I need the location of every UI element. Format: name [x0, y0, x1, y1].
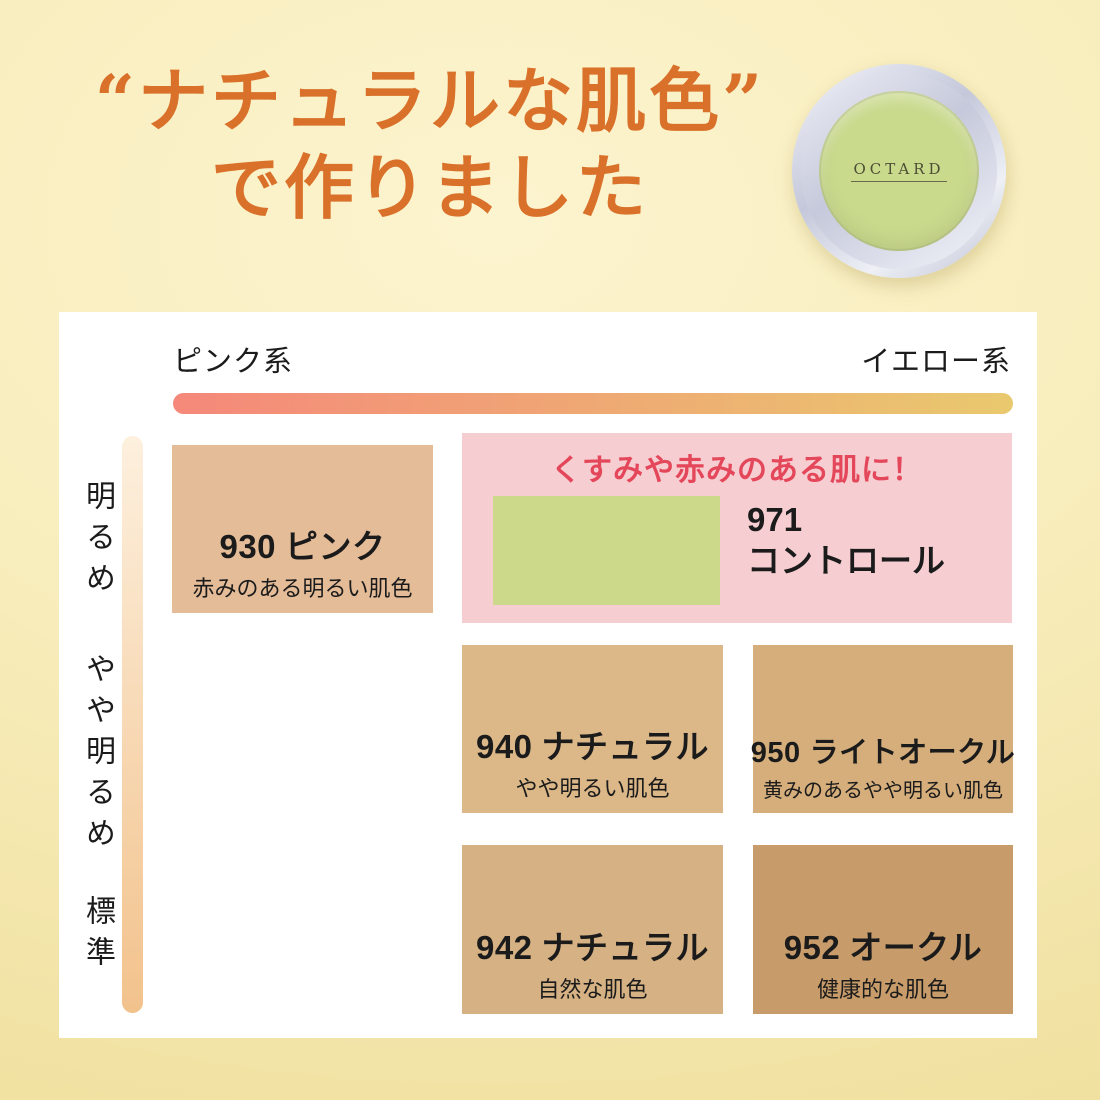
shade-swatch-940: 940ナチュラル やや明るい肌色 [462, 645, 723, 813]
callout-panel: くすみや赤みのある肌に！ 971 コントロール [462, 433, 1012, 623]
shade-name: ピンク [285, 528, 386, 565]
shade-code: 952 [784, 929, 841, 966]
shade-swatch-971 [493, 496, 720, 605]
axis-label-pink-type: ピンク系 [173, 338, 293, 380]
product-compact-image: OCTARD [792, 64, 1006, 278]
shade-title-950: 950ライトオークル [751, 729, 1016, 771]
headline-line2: で作りました [30, 145, 830, 232]
shade-name: オークル [849, 929, 982, 966]
shade-desc-940: やや明るい肌色 [515, 771, 669, 803]
shade-code: 930 [219, 528, 276, 565]
shade-name: ライトオークル [810, 737, 1016, 769]
brightness-label-bright: 明るめ [75, 480, 119, 603]
callout-heading: くすみや赤みのある肌に！ [462, 445, 1012, 489]
axis-label-yellow-type: イエロー系 [861, 338, 1011, 380]
shade-swatch-930: 930ピンク 赤みのある明るい肌色 [172, 445, 433, 613]
headline-line1: “ナチュラルな肌色” [30, 58, 830, 145]
shade-swatch-952: 952オークル 健康的な肌色 [753, 845, 1013, 1014]
shade-name: ナチュラル [542, 929, 710, 966]
shade-desc-930: 赤みのある明るい肌色 [192, 571, 412, 603]
brightness-label-standard: 標準 [75, 895, 119, 977]
shade-name: コントロール [747, 540, 945, 581]
shade-code: 971 [747, 499, 945, 540]
tone-gradient-bar [173, 393, 1013, 414]
shade-title-930: 930ピンク [219, 520, 385, 568]
compact-powder-pan: OCTARD [819, 91, 979, 251]
shade-code: 950 [751, 737, 801, 769]
brightness-label-somewhat-bright: やや明るめ [75, 653, 119, 858]
shade-desc-942: 自然な肌色 [537, 972, 647, 1004]
shade-swatch-950: 950ライトオークル 黄みのあるやや明るい肌色 [753, 645, 1013, 813]
shade-code: 940 [476, 728, 533, 765]
brightness-gradient-bar [122, 436, 143, 1013]
shade-title-952: 952オークル [784, 921, 983, 969]
headline: “ナチュラルな肌色” で作りました [30, 58, 830, 232]
shade-desc-950: 黄みのあるやや明るい肌色 [763, 774, 1003, 803]
shade-name: ナチュラル [542, 728, 710, 765]
brand-logo: OCTARD [851, 160, 946, 182]
shade-title-942: 942ナチュラル [476, 921, 709, 969]
shade-swatch-942: 942ナチュラル 自然な肌色 [462, 845, 723, 1014]
shade-code: 942 [476, 929, 533, 966]
shade-chart-panel: ピンク系 イエロー系 明るめ やや明るめ 標準 930ピンク 赤みのある明るい肌… [59, 312, 1037, 1038]
shade-desc-952: 健康的な肌色 [817, 972, 949, 1004]
page-background: “ナチュラルな肌色” で作りました OCTARD ピンク系 イエロー系 明るめ … [0, 0, 1100, 1100]
shade-title-971: 971 コントロール [747, 499, 945, 581]
shade-title-940: 940ナチュラル [476, 720, 709, 768]
